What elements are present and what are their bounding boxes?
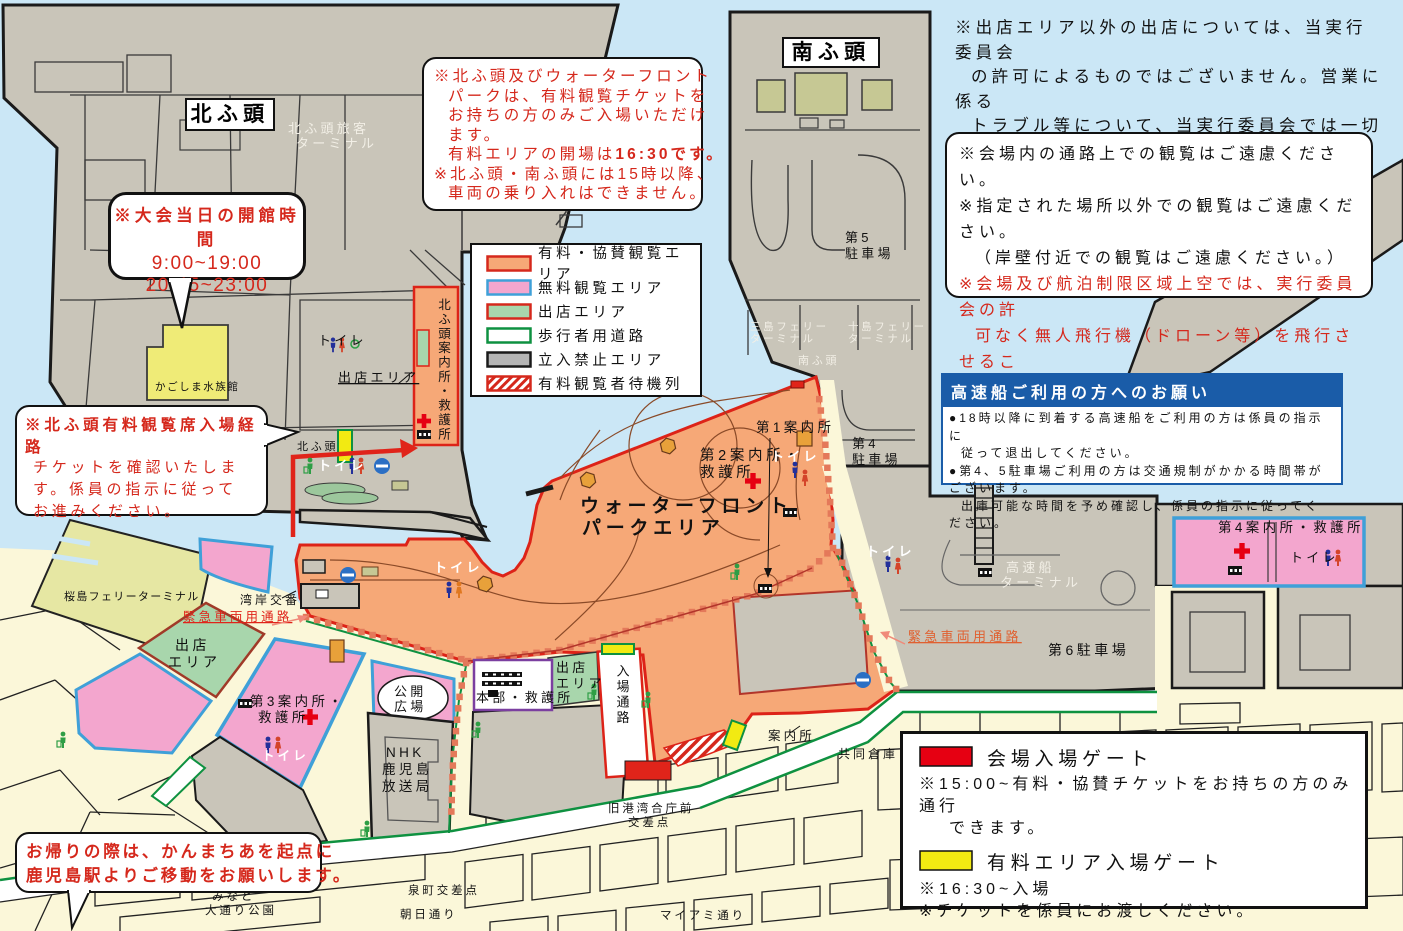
svg-text:トイレ: トイレ <box>771 449 820 464</box>
svg-text:NHK: NHK <box>386 745 425 760</box>
svg-text:救護所: 救護所 <box>700 464 754 481</box>
svg-text:放送局: 放送局 <box>382 779 433 794</box>
svg-text:泉町交差点: 泉町交差点 <box>408 883 480 897</box>
svg-text:旧港湾合庁前: 旧港湾合庁前 <box>608 801 694 815</box>
svg-text:ターミナル: ターミナル <box>1000 575 1081 590</box>
svg-text:ウォーターフロント: ウォーターフロント <box>580 495 793 517</box>
svg-text:高速船: 高速船 <box>1006 560 1055 575</box>
svg-text:公開: 公開 <box>394 684 427 699</box>
svg-text:入場通路: 入場通路 <box>615 664 630 726</box>
svg-text:トイレ: トイレ <box>318 333 367 348</box>
svg-text:鹿児島: 鹿児島 <box>382 761 433 777</box>
svg-text:湾岸交番: 湾岸交番 <box>240 592 300 607</box>
svg-text:駐車場: 駐車場 <box>852 452 901 467</box>
svg-text:救護所: 救護所 <box>258 710 309 725</box>
svg-text:トイレ: トイレ <box>262 749 309 763</box>
svg-text:エリア: エリア <box>168 654 221 670</box>
svg-text:広場: 広場 <box>394 699 427 714</box>
svg-text:トイレ: トイレ <box>1290 550 1339 565</box>
svg-text:ターミナル: ターミナル <box>848 333 914 345</box>
svg-text:駐車場: 駐車場 <box>845 246 894 261</box>
svg-text:第4: 第4 <box>852 436 879 451</box>
svg-text:マイアミ通り: マイアミ通り <box>660 909 746 922</box>
svg-text:エリア: エリア <box>556 676 605 691</box>
svg-text:パークエリア: パークエリア <box>582 517 725 539</box>
svg-text:朝日通り: 朝日通り <box>400 908 458 921</box>
svg-text:第3案内所・: 第3案内所・ <box>250 693 345 709</box>
svg-text:トイレ: トイレ <box>318 458 367 473</box>
svg-text:ターミナル: ターミナル <box>750 333 816 345</box>
svg-text:緊急車両用通路: 緊急車両用通路 <box>183 609 292 624</box>
svg-text:トイレ: トイレ <box>866 544 915 559</box>
svg-text:共同倉庫: 共同倉庫 <box>838 746 898 761</box>
svg-text:第5: 第5 <box>845 230 872 245</box>
svg-text:大通り公園: 大通り公園 <box>205 903 277 917</box>
svg-text:かごしま水族館: かごしま水族館 <box>155 380 240 393</box>
svg-text:第1案内所: 第1案内所 <box>756 419 834 435</box>
svg-text:交差点: 交差点 <box>628 815 671 829</box>
svg-text:本部・救護所: 本部・救護所 <box>476 690 574 705</box>
svg-text:十島フェリー: 十島フェリー <box>848 320 927 333</box>
svg-text:出店エリア: 出店エリア <box>338 370 419 385</box>
svg-text:三島フェリー: 三島フェリー <box>750 320 829 333</box>
svg-text:ターミナル: ターミナル <box>296 136 377 151</box>
svg-text:南ふ頭: 南ふ頭 <box>798 354 839 367</box>
svg-text:出店: 出店 <box>556 660 589 675</box>
svg-text:緊急車両用通路: 緊急車両用通路 <box>908 629 1022 644</box>
svg-text:北ふ頭旅客: 北ふ頭旅客 <box>288 121 369 136</box>
svg-text:案内所: 案内所 <box>768 728 815 743</box>
svg-text:第6駐車場: 第6駐車場 <box>1048 642 1129 658</box>
svg-text:北ふ頭案内所・救護所: 北ふ頭案内所・救護所 <box>436 298 450 442</box>
svg-text:トイレ: トイレ <box>434 560 483 575</box>
svg-text:桜島フェリーターミナル: 桜島フェリーターミナル <box>64 589 200 603</box>
svg-text:出店: 出店 <box>175 637 210 653</box>
